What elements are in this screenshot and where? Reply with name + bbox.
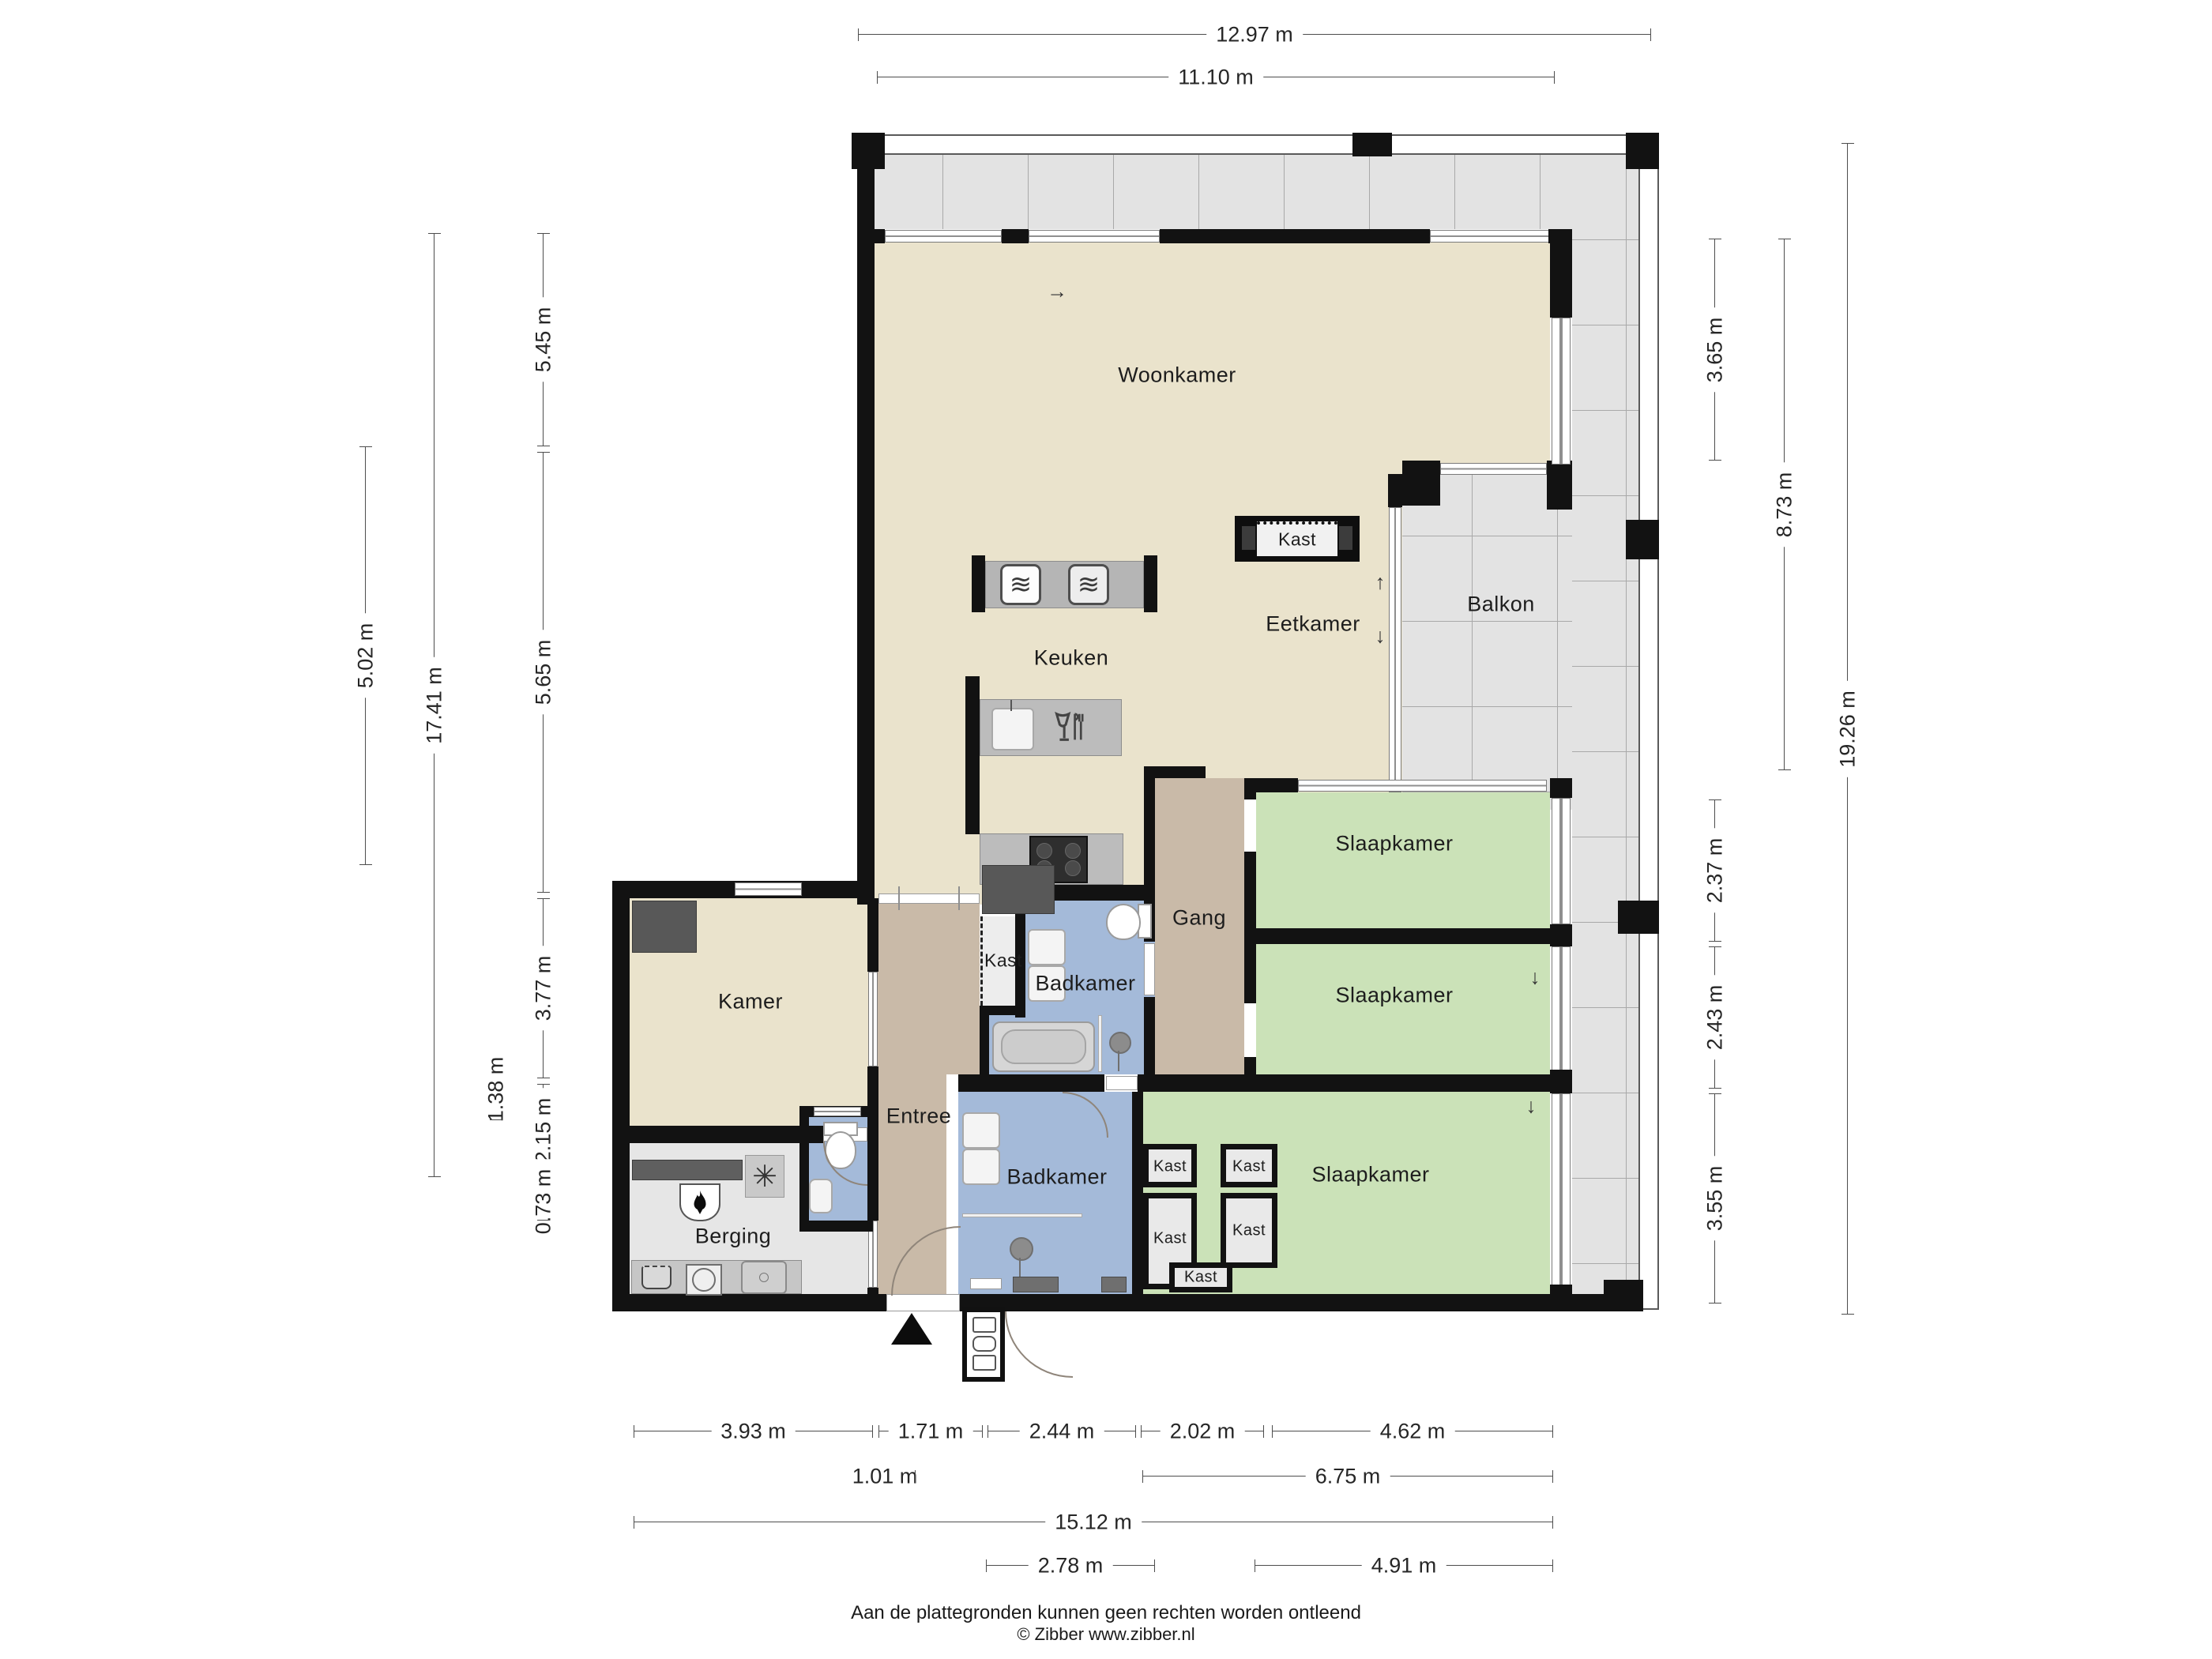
wall-balkon-post-right: [1547, 461, 1572, 510]
window-eetkamer-balkon: [1389, 507, 1401, 792]
wall-right-b: [1550, 778, 1572, 798]
label-eetkamer: Eetkamer: [1266, 612, 1360, 637]
arrow-eetkamer-door-down: ↓: [1375, 624, 1386, 649]
wall-main-left: [857, 154, 875, 905]
door-tick-1: [898, 886, 900, 910]
fridge-cabinet: [982, 865, 1055, 914]
window-woonkamer-1: [885, 230, 1002, 243]
glassware-icon: [1049, 709, 1085, 746]
dim-right-355: 3.55 m: [1714, 1093, 1715, 1303]
wall-right-c: [1550, 924, 1572, 946]
entree-top-sill: [878, 893, 980, 904]
label-gang: Gang: [1172, 906, 1226, 931]
label-kast-c: Kast: [1153, 1230, 1187, 1248]
floorplan-canvas: ≋ ≋ ✳: [0, 0, 2212, 1659]
fan-icon: ✳: [752, 1159, 777, 1194]
wall-bottom-left: [612, 1294, 886, 1311]
wall-gang-top: [1144, 766, 1206, 778]
dim-left-138: 1.38 m: [495, 1059, 496, 1120]
wall-eet-balkon-stub: [1388, 474, 1402, 507]
footer-disclaimer: Aan de plattegronden kunnen geen rechten…: [851, 1602, 1361, 1624]
laundry-basket-icon: [641, 1266, 671, 1289]
dim-right-237: 2.37 m: [1714, 799, 1715, 942]
meter-cupboard: [962, 1307, 1005, 1382]
dim-bot-1512: 15.12 m: [634, 1522, 1553, 1522]
wall-mid-b: [1138, 1074, 1550, 1092]
dim-left-377: 3.77 m: [543, 898, 544, 1078]
wall-kamer-bottom: [630, 1126, 823, 1143]
outer-post-right-2: [1618, 901, 1659, 934]
label-kast-b: Kast: [1232, 1158, 1266, 1176]
kamer-closet: [632, 901, 697, 953]
label-balkon: Balkon: [1467, 592, 1535, 617]
arrow-slaap3-door: ↓: [1526, 1094, 1537, 1119]
badk1-bathtub: [992, 1021, 1095, 1072]
window-slaap1-right: [1552, 798, 1571, 924]
wall-woon-top-c: [1160, 229, 1430, 243]
wall-slaap-divider: [1244, 928, 1550, 944]
label-woonkamer: Woonkamer: [1118, 363, 1236, 388]
label-slaapkamer-1: Slaapkamer: [1335, 832, 1453, 856]
dim-bot-491: 4.91 m: [1255, 1565, 1553, 1566]
wall-toilet-left: [799, 1117, 809, 1221]
entrance-arrow-triangle: [891, 1313, 932, 1345]
wall-kamer-entree-b: [867, 1066, 878, 1128]
outer-wall-top: [852, 134, 1659, 155]
badk2-window-sill: [970, 1278, 1002, 1289]
badk2-sink-2: [962, 1149, 1000, 1185]
label-kast-a: Kast: [1153, 1158, 1187, 1176]
window-kamer-top: [735, 882, 802, 896]
mv-fan-box: ✳: [745, 1155, 784, 1198]
wall-woon-top-b: [1002, 229, 1029, 243]
wall-gang-slaap-c: [1244, 1057, 1256, 1074]
badk1-shower-screen: [1098, 1015, 1102, 1072]
balcony-middle: [1402, 474, 1572, 810]
badk1-sink-1: [1028, 929, 1066, 965]
badk2-sink-1: [962, 1112, 1000, 1149]
kitchen-sink-icon: [991, 708, 1034, 750]
berging-shelf: [632, 1160, 743, 1180]
label-berging: Berging: [695, 1224, 772, 1249]
label-kast-woonkamer: Kast: [1278, 529, 1316, 551]
label-keuken: Keuken: [1034, 646, 1109, 671]
badk1-toilet: [1104, 902, 1152, 939]
label-kamer: Kamer: [718, 990, 783, 1014]
wall-right-d: [1550, 1070, 1572, 1093]
label-kast-entree: Kast: [984, 950, 1022, 972]
wall-berging-entree-a: [867, 1128, 878, 1221]
outer-wall-right: [1638, 134, 1659, 1310]
arrow-eetkamer-door-up: ↑: [1375, 570, 1386, 595]
window-slaap3-right: [1552, 1093, 1571, 1286]
outer-post-topmid: [1352, 133, 1392, 156]
door-sill-front: [886, 1294, 960, 1311]
dim-left-565: 5.65 m: [543, 452, 544, 893]
window-balkon-top: [1440, 463, 1547, 475]
door-sill-badk1: [1144, 943, 1155, 995]
dim-bot-675: 6.75 m: [1142, 1476, 1553, 1477]
footer-credit: © Zibber www.zibber.nl: [1017, 1624, 1194, 1645]
oven-icon-2: ≋: [1068, 564, 1109, 605]
dim-left-502: 5.02 m: [365, 446, 366, 865]
arrow-woonkamer-door: →: [1047, 280, 1067, 304]
wall-kast-entree-bottom: [980, 1006, 1025, 1015]
wall-gang-slaap-a: [1244, 792, 1256, 799]
wall-keuken-mid: [965, 676, 980, 834]
wall-badk1-nook-left: [980, 1015, 989, 1074]
window-slaap2-right: [1552, 946, 1571, 1071]
toilet-sink: [809, 1179, 833, 1213]
dim-right-243: 2.43 m: [1714, 946, 1715, 1089]
arrow-slaap2-door: ↓: [1530, 965, 1540, 990]
wall-right-a: [1550, 242, 1572, 318]
wall-mid-a: [958, 1074, 1104, 1092]
wall-badk2-right: [1132, 1092, 1143, 1294]
room-entree-upper: [877, 903, 980, 1074]
dim-right-1926: 19.26 m: [1847, 143, 1848, 1315]
outer-post-topright: [1626, 133, 1659, 169]
door-sill-badk2: [1106, 1076, 1138, 1090]
window-woon-right: [1552, 318, 1571, 465]
wall-gang-left-b: [1144, 997, 1155, 1074]
dim-left-1741: 17.41 m: [434, 233, 434, 1177]
window-woonkamer-3: [1430, 230, 1550, 243]
badk1-shower-stem: [1118, 1051, 1119, 1071]
oven-icon: ≋: [1000, 564, 1041, 605]
wall-bottom-right: [960, 1294, 1629, 1311]
room-slaapkamer-1: [1256, 792, 1550, 928]
window-toilet: [814, 1107, 861, 1116]
dim-bot-101: 1.01 m: [854, 1476, 916, 1477]
balcony-top-strip: [857, 154, 1639, 229]
door-tick-2: [958, 886, 960, 910]
washing-machine-icon: [686, 1264, 722, 1296]
dim-bot-171: 1.71 m: [878, 1431, 983, 1431]
badk2-radiator-1: [1013, 1277, 1059, 1292]
dim-top-1297: 12.97 m: [858, 34, 1651, 35]
label-badkamer-2: Badkamer: [1006, 1165, 1107, 1190]
dim-right-873: 8.73 m: [1784, 239, 1785, 770]
dim-bot-393: 3.93 m: [634, 1431, 873, 1431]
room-slaapkamer-2: [1256, 944, 1550, 1074]
wall-island-cap-left: [972, 555, 985, 612]
badk2-showerhead-icon: [1010, 1237, 1033, 1261]
badk2-radiator-2: [1101, 1277, 1127, 1292]
badk2-shower-screen: [962, 1213, 1082, 1217]
wall-gang-slaap-b: [1244, 852, 1256, 1003]
dim-bot-462: 4.62 m: [1272, 1431, 1553, 1431]
label-kast-e: Kast: [1184, 1269, 1217, 1287]
shower-tray-icon: [741, 1261, 787, 1294]
wall-left-section-left: [612, 881, 630, 1311]
front-door-arc-outside: [1005, 1311, 1073, 1378]
wall-toilet-bottom: [799, 1221, 873, 1232]
label-slaapkamer-2: Slaapkamer: [1335, 984, 1453, 1008]
kitchen-faucet: [1010, 700, 1012, 711]
label-kast-d: Kast: [1232, 1222, 1266, 1240]
dim-bot-202: 2.02 m: [1141, 1431, 1264, 1431]
window-slaap1-top: [1298, 780, 1547, 792]
label-badkamer-1: Badkamer: [1035, 972, 1135, 996]
dim-bot-278: 2.78 m: [986, 1565, 1155, 1566]
dim-bot-244: 2.44 m: [987, 1431, 1136, 1431]
dim-left-073: 0.73 m: [543, 1183, 544, 1221]
boiler-box: [679, 1183, 720, 1221]
wall-island-cap-right: [1144, 555, 1157, 612]
window-woonkamer-2: [1029, 230, 1160, 243]
wall-kamer-entree-a: [867, 898, 878, 972]
badk1-showerhead-icon: [1109, 1032, 1131, 1054]
dim-left-545: 5.45 m: [543, 233, 544, 446]
label-entree: Entree: [886, 1104, 952, 1129]
room-woonkamer: [857, 241, 1550, 474]
wall-balkon-post-left: [1402, 461, 1440, 506]
wall-slaap1-top: [1244, 778, 1298, 792]
dim-right-365: 3.65 m: [1714, 239, 1715, 461]
dim-top-1110: 11.10 m: [877, 77, 1555, 77]
label-slaapkamer-3: Slaapkamer: [1311, 1163, 1429, 1187]
outer-post-right-1: [1626, 520, 1659, 559]
flame-icon: [691, 1191, 709, 1214]
window-kamer-entree: [868, 972, 878, 1066]
balcony-right-column: [1572, 154, 1639, 1307]
